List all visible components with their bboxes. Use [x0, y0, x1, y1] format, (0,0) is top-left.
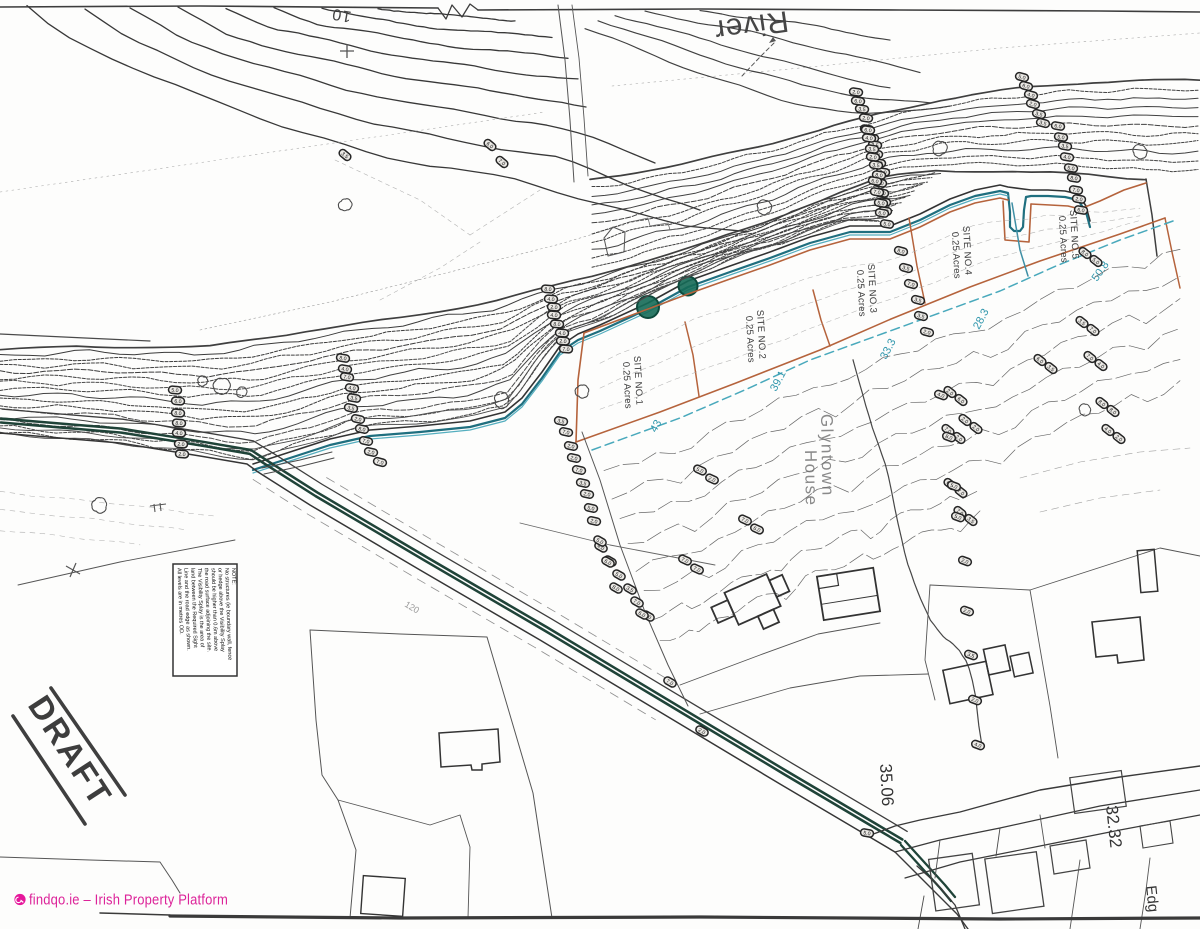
- svg-text:3.5: 3.5: [868, 146, 876, 153]
- svg-text:7.0: 7.0: [562, 347, 570, 354]
- svg-text:findqo.ie – Irish Property Pla: findqo.ie – Irish Property Platform: [29, 892, 228, 909]
- svg-text:8.0: 8.0: [174, 411, 182, 418]
- svg-text:5.0: 5.0: [883, 221, 891, 228]
- svg-text:6.0: 6.0: [864, 127, 872, 134]
- svg-text:8.0: 8.0: [175, 421, 183, 428]
- svg-text:6.0: 6.0: [878, 210, 886, 217]
- svg-text:7.0: 7.0: [873, 189, 881, 196]
- svg-text:3.5: 3.5: [350, 395, 358, 402]
- svg-text:NOTE:: NOTE:: [230, 568, 237, 585]
- svg-text:3.5: 3.5: [872, 162, 880, 169]
- svg-text:4.0: 4.0: [175, 431, 183, 438]
- svg-text:2.0: 2.0: [178, 452, 186, 459]
- svg-text:7.0: 7.0: [1072, 187, 1080, 194]
- svg-text:7.0: 7.0: [343, 374, 351, 381]
- svg-text:35.06: 35.06: [876, 763, 897, 806]
- svg-text:5.0: 5.0: [171, 388, 179, 395]
- svg-text:2.0: 2.0: [550, 305, 558, 312]
- svg-text:House: House: [801, 450, 821, 507]
- svg-text:3.5: 3.5: [858, 106, 866, 113]
- svg-text:5.0: 5.0: [863, 830, 871, 837]
- svg-text:2.0: 2.0: [559, 339, 567, 346]
- svg-text:6.0: 6.0: [174, 399, 182, 406]
- svg-text:4.0: 4.0: [547, 297, 555, 304]
- svg-text:3.5: 3.5: [1061, 143, 1069, 150]
- svg-text:4.0: 4.0: [865, 135, 873, 142]
- svg-text:8.0: 8.0: [339, 355, 347, 362]
- svg-text:2.0: 2.0: [1075, 196, 1083, 203]
- svg-text:8.0: 8.0: [544, 287, 552, 294]
- svg-text:6.0: 6.0: [871, 178, 879, 185]
- svg-text:4.0: 4.0: [550, 313, 558, 320]
- svg-text:5.0: 5.0: [1067, 165, 1075, 172]
- svg-text:10: 10: [330, 5, 352, 25]
- svg-text:5.0: 5.0: [1057, 134, 1065, 141]
- svg-text:4.0: 4.0: [1063, 154, 1071, 161]
- svg-text:6.0: 6.0: [854, 98, 862, 105]
- svg-text:2.0: 2.0: [852, 89, 860, 96]
- svg-text:8.0: 8.0: [1070, 175, 1078, 182]
- svg-text:6.0: 6.0: [1077, 207, 1085, 214]
- svg-text:4.0: 4.0: [348, 385, 356, 392]
- svg-text:2.0: 2.0: [862, 115, 870, 122]
- svg-text:6.0: 6.0: [1054, 123, 1062, 130]
- svg-text:5.0: 5.0: [877, 200, 885, 207]
- svg-text:4.0: 4.0: [558, 331, 566, 338]
- svg-text:8.0: 8.0: [553, 322, 561, 329]
- svg-text:2.0: 2.0: [177, 442, 185, 449]
